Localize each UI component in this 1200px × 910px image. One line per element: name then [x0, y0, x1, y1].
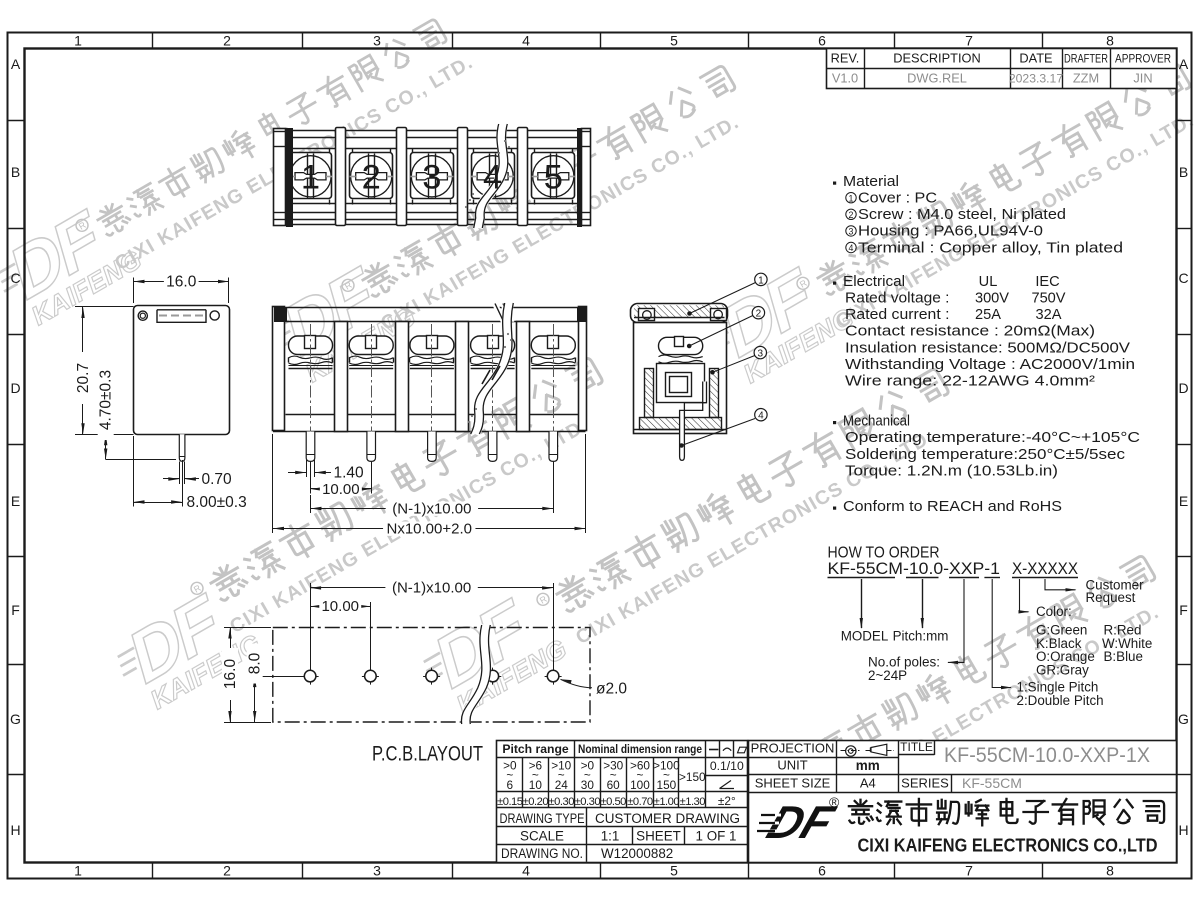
svg-text:IEC: IEC	[1035, 274, 1059, 290]
svg-text:5: 5	[544, 159, 563, 197]
svg-text:>150: >150	[679, 770, 706, 784]
svg-text:P.C.B.LAYOUT: P.C.B.LAYOUT	[372, 743, 483, 766]
svg-text:0.70: 0.70	[202, 471, 233, 488]
svg-text:2023.3.17: 2023.3.17	[1009, 72, 1063, 86]
svg-text:(N-1)x10.00: (N-1)x10.00	[392, 500, 471, 517]
svg-text:Rated voltage :: Rated voltage :	[845, 291, 950, 307]
svg-text:Screw : M4.0 steel, Ni pl: Screw : M4.0 steel, Ni plated	[858, 207, 1066, 223]
svg-text:±1.00: ±1.00	[654, 796, 680, 808]
svg-text:60: 60	[607, 778, 621, 792]
svg-text:Soldering temperature:250°C±5: Soldering temperature:250°C±5/5sec	[845, 447, 1125, 463]
svg-text:A4: A4	[860, 776, 876, 791]
svg-text:1.40: 1.40	[334, 465, 365, 482]
svg-text:SCALE: SCALE	[520, 829, 564, 844]
svg-text:2: 2	[223, 33, 231, 49]
svg-text:6: 6	[818, 33, 826, 49]
svg-text:PROJECTION: PROJECTION	[751, 740, 835, 755]
svg-text:W12000882: W12000882	[601, 846, 673, 861]
svg-text:4: 4	[849, 243, 854, 253]
svg-text:5: 5	[670, 33, 678, 49]
svg-text:1: 1	[74, 863, 82, 879]
svg-text:F: F	[11, 602, 20, 618]
svg-text:2: 2	[849, 210, 854, 220]
svg-text:UL: UL	[979, 274, 998, 290]
svg-text:2:Double Pitch: 2:Double Pitch	[1017, 693, 1104, 708]
svg-text:1: 1	[301, 159, 320, 197]
svg-text:±0.30: ±0.30	[575, 796, 601, 808]
svg-text:H: H	[1178, 822, 1188, 838]
svg-text:1: 1	[758, 275, 764, 286]
svg-text:GR:Gray: GR:Gray	[1036, 662, 1089, 677]
svg-text:Insulation resistance: 500MΩ: Insulation resistance: 500MΩ/DC500V	[845, 341, 1130, 357]
svg-text:7: 7	[965, 863, 973, 879]
svg-text:4: 4	[483, 159, 502, 197]
svg-text:2: 2	[362, 159, 381, 197]
svg-text:32A: 32A	[1036, 307, 1062, 323]
svg-text:(N-1)x10.00: (N-1)x10.00	[392, 580, 471, 597]
svg-text:Rated current :: Rated current :	[845, 307, 950, 323]
svg-text:4: 4	[522, 33, 530, 49]
svg-text:KF-55CM: KF-55CM	[962, 775, 1022, 791]
svg-text:SHEET SIZE: SHEET SIZE	[755, 776, 831, 791]
svg-text:E: E	[1179, 493, 1188, 509]
svg-text:ZZM: ZZM	[1073, 71, 1099, 86]
svg-text:1:1: 1:1	[601, 829, 620, 844]
svg-text:6: 6	[507, 778, 514, 792]
svg-text:1: 1	[849, 193, 854, 203]
svg-text:Contact resistance : 20mΩ(M: Contact resistance : 20mΩ(Max)	[845, 324, 1095, 340]
svg-text:30: 30	[581, 778, 595, 792]
svg-text:Material: Material	[843, 174, 899, 190]
svg-text:±0.70: ±0.70	[627, 796, 653, 808]
svg-text:Housing : PA66,UL94V-0: Housing : PA66,UL94V-0	[858, 224, 1043, 240]
svg-text:B: B	[1179, 164, 1188, 180]
svg-text:CUSTOMER DRAWING: CUSTOMER DRAWING	[595, 811, 740, 826]
svg-text:±0.50: ±0.50	[600, 796, 626, 808]
svg-text:C: C	[1178, 270, 1188, 286]
svg-text:3: 3	[758, 349, 764, 360]
svg-text:16.0: 16.0	[222, 659, 239, 690]
svg-text:8.0: 8.0	[247, 652, 264, 674]
svg-text:2: 2	[223, 863, 231, 879]
svg-text:10: 10	[529, 778, 543, 792]
svg-text:1 OF 1: 1 OF 1	[696, 829, 737, 844]
svg-text:Pitch range: Pitch range	[502, 742, 569, 756]
svg-text:25A: 25A	[975, 307, 1001, 323]
svg-text:MODEL: MODEL	[841, 629, 889, 644]
svg-text:A: A	[1179, 56, 1189, 72]
svg-text:100: 100	[630, 778, 650, 792]
svg-text:mm: mm	[856, 758, 880, 773]
svg-text:KF-55CM-10.0-XXP-1X: KF-55CM-10.0-XXP-1X	[944, 743, 1150, 767]
svg-text:Withstanding Voltage : AC20: Withstanding Voltage : AC2000V/1min	[845, 357, 1135, 373]
svg-text:DRAWING NO.: DRAWING NO.	[501, 846, 583, 861]
svg-text:Electrical: Electrical	[843, 274, 905, 290]
svg-text:±1.30: ±1.30	[680, 796, 706, 808]
svg-text:DWG.REL: DWG.REL	[907, 71, 967, 86]
svg-text:Cover : PC: Cover : PC	[858, 191, 937, 207]
svg-text:4.70±0.3: 4.70±0.3	[98, 370, 115, 430]
svg-text:7: 7	[965, 33, 973, 49]
svg-text:Torque: 1.2N.m (10.53Lb.in): Torque: 1.2N.m (10.53Lb.in)	[845, 464, 1058, 480]
svg-text:REV.: REV.	[831, 51, 860, 66]
svg-text:UNIT: UNIT	[777, 758, 807, 773]
svg-text:SERIES: SERIES	[901, 776, 949, 791]
svg-text:Mechanical: Mechanical	[843, 414, 910, 430]
svg-text:8: 8	[1106, 33, 1114, 49]
svg-text:4: 4	[758, 411, 764, 422]
svg-text:Wire range: 22-12AWG 4.0m: Wire range: 22-12AWG 4.0mm²	[845, 374, 1095, 390]
svg-text:DRAFTER: DRAFTER	[1064, 52, 1108, 66]
svg-text:KF-55CM-10.0-XXP-1: KF-55CM-10.0-XXP-1	[828, 560, 1001, 578]
svg-text:JIN: JIN	[1133, 71, 1152, 86]
svg-text:APPROVER: APPROVER	[1115, 52, 1171, 66]
svg-text:±0.30: ±0.30	[549, 796, 575, 808]
svg-text:10.00: 10.00	[322, 481, 360, 498]
svg-text:CIXI KAIFENG ELECTRONICS CO.,L: CIXI KAIFENG ELECTRONICS CO.,LTD	[858, 835, 1158, 856]
svg-text:Terminal : Copper alloy, T: Terminal : Copper alloy, Tin plated	[858, 240, 1123, 256]
svg-text:3: 3	[373, 33, 381, 49]
svg-text:A: A	[11, 56, 21, 72]
svg-text:H: H	[10, 822, 20, 838]
svg-text:Color:: Color:	[1036, 604, 1072, 619]
svg-text:150: 150	[657, 778, 677, 792]
svg-text:B: B	[11, 164, 20, 180]
svg-text:20.7: 20.7	[75, 363, 92, 393]
svg-text:±0.15: ±0.15	[497, 796, 523, 808]
svg-text:8: 8	[1106, 863, 1114, 879]
svg-text:8.00±0.3: 8.00±0.3	[187, 494, 247, 511]
svg-text:Nominal dimension range: Nominal dimension range	[578, 742, 702, 756]
svg-text:G: G	[1178, 711, 1189, 727]
svg-text:5: 5	[670, 863, 678, 879]
svg-text:C: C	[10, 270, 20, 286]
svg-text:Conform to REACH and RoHS: Conform to REACH and RoHS	[843, 499, 1062, 515]
svg-text:V1.0: V1.0	[832, 71, 858, 86]
svg-text:DRAWING TYPE: DRAWING TYPE	[500, 811, 585, 826]
svg-text:TITLE: TITLE	[900, 740, 933, 754]
svg-text:D: D	[1178, 380, 1188, 396]
svg-text:750V: 750V	[1031, 291, 1065, 307]
svg-text:D: D	[10, 380, 20, 396]
svg-text:2~24P: 2~24P	[868, 668, 907, 683]
svg-text:24: 24	[555, 778, 569, 792]
svg-text:±2°: ±2°	[718, 794, 736, 808]
svg-text:300V: 300V	[975, 291, 1009, 307]
svg-text:®: ®	[829, 794, 840, 810]
svg-text:E: E	[11, 493, 20, 509]
svg-text:DATE: DATE	[1019, 51, 1052, 66]
svg-text:3: 3	[373, 863, 381, 879]
svg-text:G: G	[10, 711, 21, 727]
svg-text:10.00: 10.00	[321, 598, 359, 615]
svg-text:ø2.0: ø2.0	[596, 681, 627, 698]
svg-text:6: 6	[818, 863, 826, 879]
svg-text:3: 3	[422, 159, 441, 197]
svg-text:F: F	[1179, 602, 1188, 618]
svg-text:16.0: 16.0	[166, 273, 197, 290]
svg-text:Pitch:mm: Pitch:mm	[893, 629, 949, 644]
svg-text:1: 1	[74, 33, 82, 49]
svg-text:2: 2	[756, 309, 762, 320]
svg-text:±0.20: ±0.20	[523, 796, 549, 808]
svg-text:Request: Request	[1086, 590, 1136, 605]
svg-text:4: 4	[522, 863, 530, 879]
svg-text:X-XXXXX: X-XXXXX	[1012, 560, 1078, 578]
svg-text:SHEET: SHEET	[636, 829, 681, 844]
svg-text:DESCRIPTION: DESCRIPTION	[893, 51, 980, 66]
svg-text:3: 3	[849, 227, 854, 237]
svg-text:Nx10.00+2.0: Nx10.00+2.0	[387, 520, 472, 537]
svg-text:0.1/10: 0.1/10	[710, 759, 744, 773]
svg-text:B:Blue: B:Blue	[1104, 649, 1143, 664]
svg-text:Operating temperature:-40°C~+: Operating temperature:-40°C~+105°C	[845, 430, 1140, 446]
svg-text:HOW TO ORDER: HOW TO ORDER	[828, 545, 940, 562]
